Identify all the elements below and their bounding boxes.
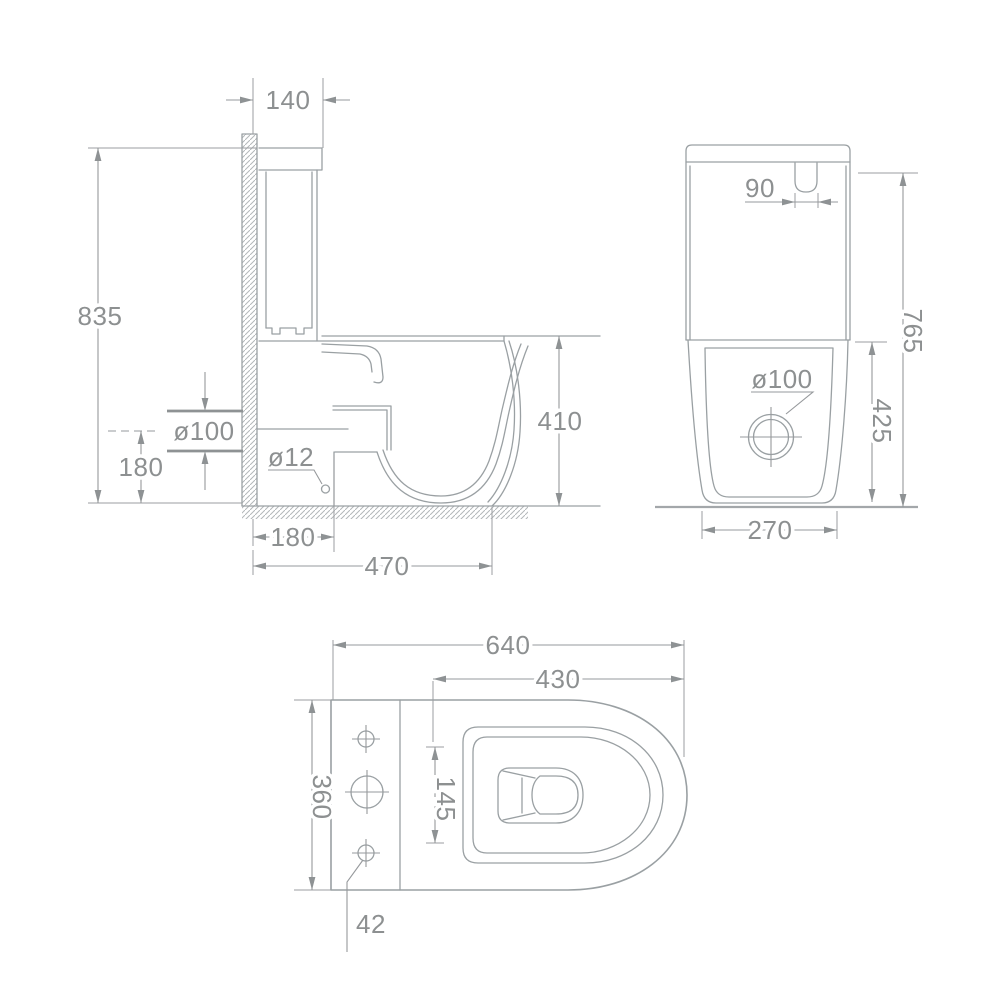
arrowhead: [309, 877, 316, 890]
dim-765-label: 765: [898, 309, 928, 354]
dim-d12-label: ø12: [268, 442, 314, 472]
arrowhead: [138, 490, 145, 503]
trap-curve-inner: [383, 344, 521, 496]
hole-crosshair: [345, 770, 389, 814]
arrowhead: [202, 451, 209, 464]
dim-470-label: 470: [365, 551, 410, 581]
drain-crosshair: [740, 407, 802, 467]
arrowhead: [818, 199, 831, 206]
dim-835-label: 835: [78, 301, 123, 331]
arrowhead: [556, 493, 563, 506]
arrowhead: [556, 336, 563, 349]
dim-410-label: 410: [538, 406, 583, 436]
mounting-hole-bottom: [352, 839, 380, 867]
arrowhead: [253, 563, 266, 570]
arrowhead: [433, 676, 446, 683]
dim-360-label: 360: [307, 775, 337, 820]
seat-ring-outer: [463, 727, 663, 863]
dim-425-label: 425: [867, 399, 897, 444]
dim-90-extensions: [795, 193, 818, 208]
flush-button-recess: [795, 163, 817, 192]
dim-d100-front-label: ø100: [751, 364, 812, 394]
sump-outline: [532, 776, 578, 814]
dim-430-label: 430: [536, 664, 581, 694]
dim-42-label: 42: [356, 909, 386, 939]
floor-hatch: [242, 506, 528, 519]
dim-270-label: 270: [748, 515, 793, 545]
arrowhead: [253, 534, 266, 541]
tank-lid-front: [686, 145, 850, 162]
mounting-hole-top: [352, 725, 380, 753]
arrowhead: [432, 830, 439, 843]
arrowhead: [240, 97, 253, 104]
arrowhead: [323, 97, 336, 104]
seat-ring-inner: [473, 737, 650, 853]
tank-lid-section: [259, 148, 322, 170]
arrowhead: [671, 676, 684, 683]
flush-tube: [333, 406, 391, 450]
dim-d100-front-leader: [751, 392, 813, 414]
arrowhead: [432, 747, 439, 760]
fixing-hole-circle: [322, 485, 330, 493]
flush-rim-outer: [322, 344, 383, 383]
plan-view: 640 430 360 145 42: [294, 630, 687, 952]
hole-crosshair: [352, 839, 380, 867]
arrowhead: [702, 527, 715, 534]
arrowhead: [900, 173, 907, 186]
arrowhead: [321, 534, 334, 541]
front-view: ø100 90 765 425 270: [655, 145, 928, 545]
funnel-lines: [503, 771, 535, 820]
dim-145-label: 145: [431, 777, 461, 822]
technical-drawing-page: 140 835 ø100 180 ø12 180 470: [0, 0, 1000, 1000]
arrowhead: [671, 642, 684, 649]
arrowhead: [824, 527, 837, 534]
dim-640-label: 640: [486, 630, 531, 660]
arrowhead: [869, 489, 876, 502]
arrowhead: [333, 642, 346, 649]
arrowhead: [138, 431, 145, 444]
dim-180-left-label: 180: [119, 452, 164, 482]
dim-180-bottom-label: 180: [271, 522, 316, 552]
arrowhead: [782, 199, 795, 206]
arrowhead: [309, 700, 316, 713]
arrowhead: [869, 342, 876, 355]
hole-crosshair: [352, 725, 380, 753]
wall-hatch: [242, 134, 257, 506]
supply-hole-center: [345, 770, 389, 814]
dim-90-label: 90: [745, 173, 775, 203]
toilet-dimension-drawing: 140 835 ø100 180 ø12 180 470: [0, 0, 1000, 1000]
arrowhead: [95, 490, 102, 503]
side-section-view: 140 835 ø100 180 ø12 180 470: [78, 78, 600, 581]
arrowhead: [202, 398, 209, 411]
dim-140-label: 140: [266, 85, 311, 115]
arrowhead: [900, 494, 907, 507]
tank-bottom-bosses: [266, 328, 312, 334]
outlet-bottom-line: [334, 452, 377, 506]
arrowhead: [95, 148, 102, 161]
arrowhead: [479, 563, 492, 570]
dim-d100-side-label: ø100: [173, 416, 234, 446]
dim-d12-leader: [268, 470, 322, 484]
plan-outline: [331, 700, 687, 890]
flush-rim-inner: [322, 352, 372, 372]
bowl-front-inner: [488, 341, 515, 502]
